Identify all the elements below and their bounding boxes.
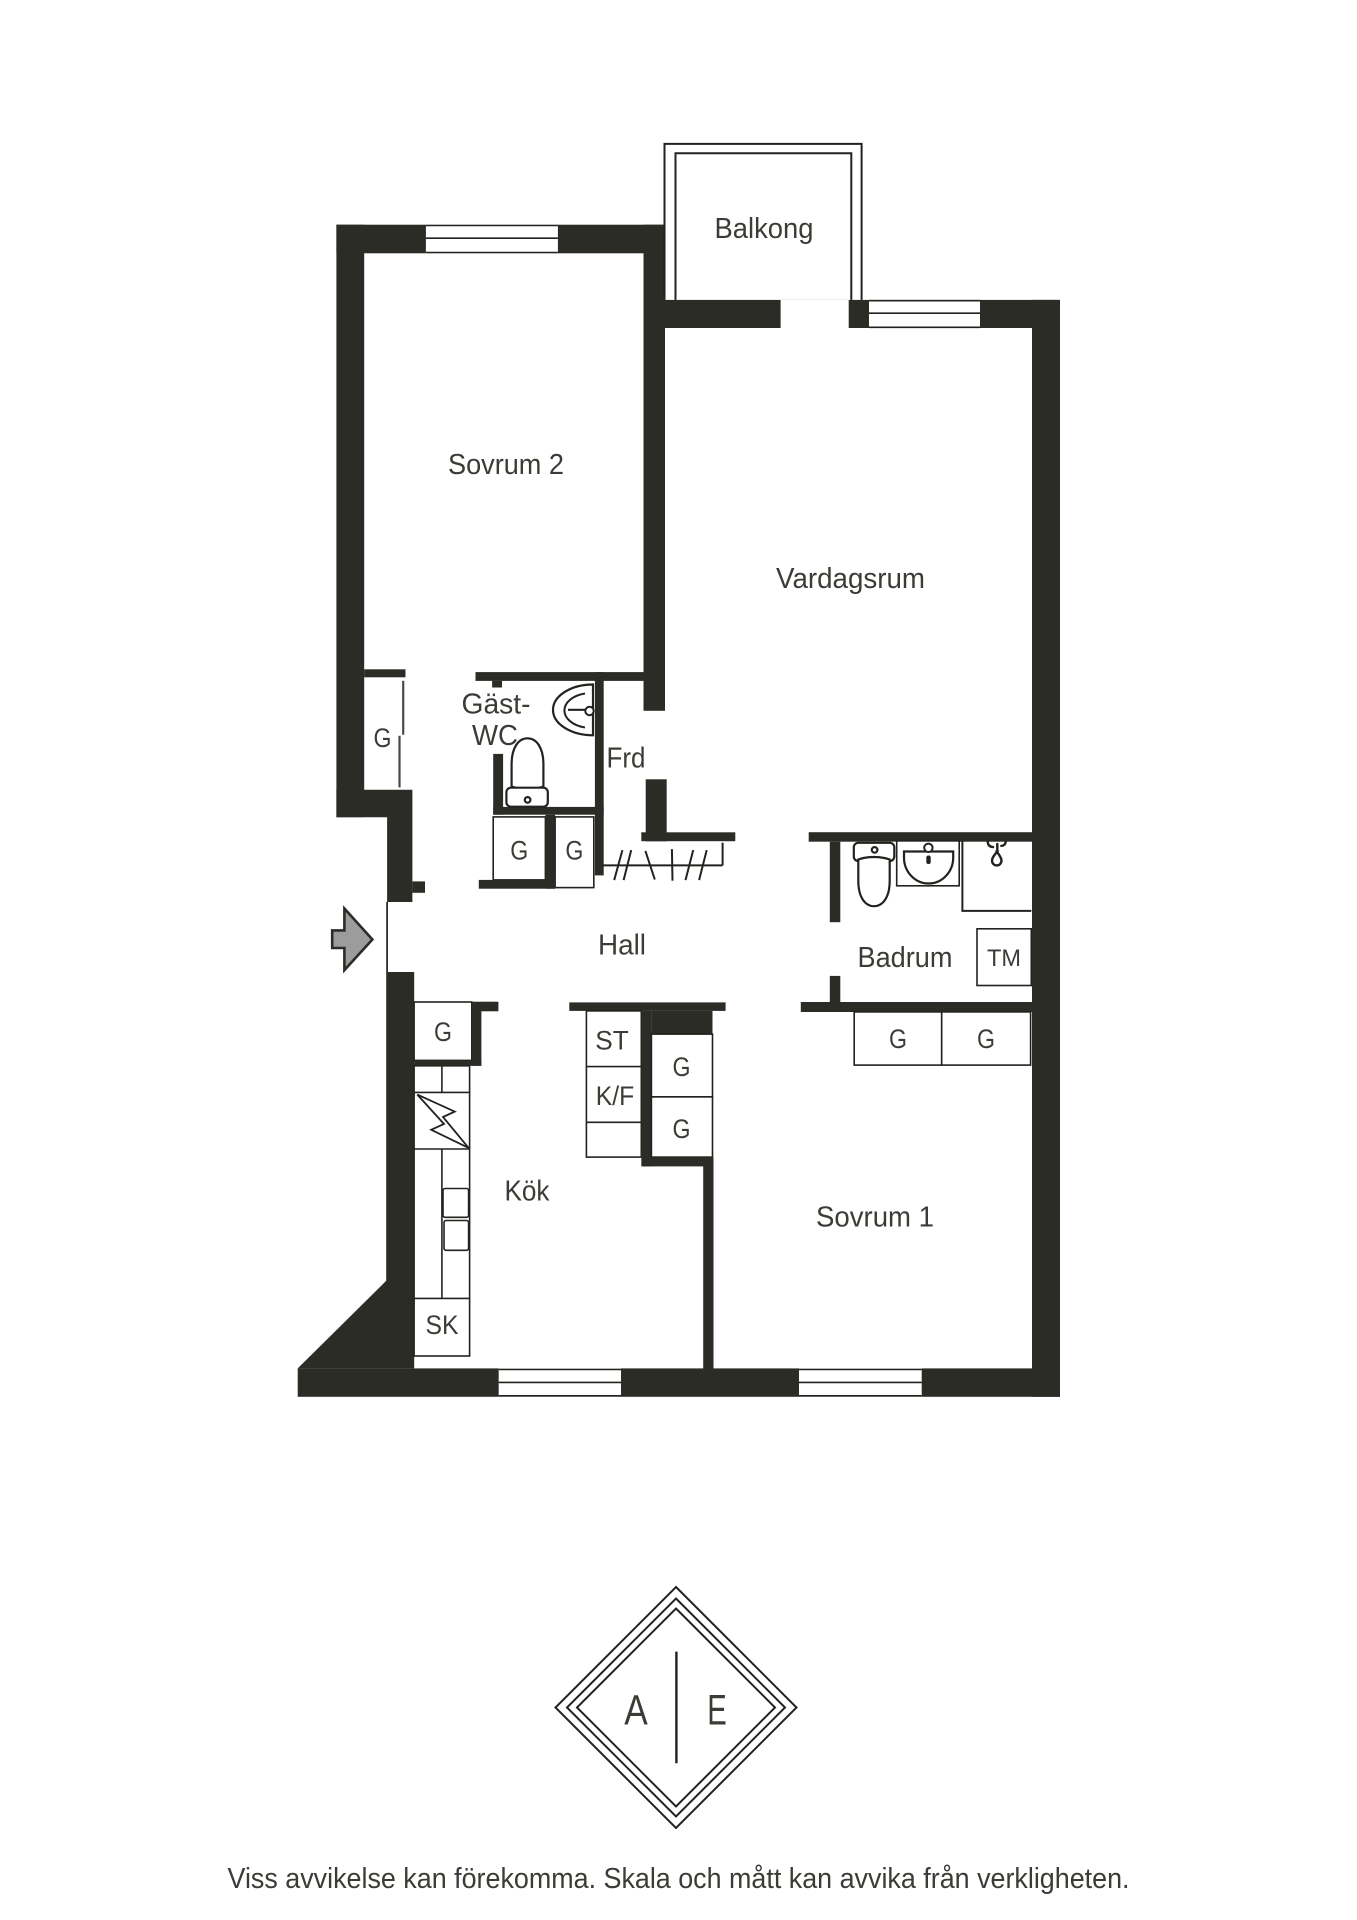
svg-text:Sovrum 2: Sovrum 2 — [448, 449, 564, 481]
svg-text:G: G — [510, 836, 528, 866]
svg-text:TM: TM — [987, 945, 1021, 972]
svg-text:Sovrum 1: Sovrum 1 — [816, 1202, 934, 1234]
svg-text:Badrum: Badrum — [858, 942, 953, 974]
svg-text:Kök: Kök — [505, 1176, 550, 1208]
svg-text:K/F: K/F — [596, 1081, 635, 1111]
svg-text:Vardagsrum: Vardagsrum — [776, 563, 925, 595]
svg-text:Frd: Frd — [607, 743, 646, 775]
svg-text:Gäst-: Gäst- — [462, 689, 531, 721]
svg-text:G: G — [673, 1114, 691, 1144]
svg-text:Balkong: Balkong — [715, 213, 814, 245]
svg-text:Hall: Hall — [598, 930, 646, 962]
svg-text:ST: ST — [595, 1026, 629, 1056]
svg-text:SK: SK — [426, 1310, 459, 1340]
svg-text:G: G — [374, 723, 392, 753]
svg-text:A: A — [624, 1686, 648, 1734]
svg-text:G: G — [977, 1024, 995, 1054]
svg-text:G: G — [565, 836, 583, 866]
svg-text:E: E — [707, 1686, 727, 1734]
svg-text:G: G — [673, 1052, 691, 1082]
svg-text:Viss avvikelse kan förekomma.: Viss avvikelse kan förekomma. Skala och … — [228, 1863, 1130, 1895]
svg-text:G: G — [434, 1017, 452, 1047]
svg-text:WC: WC — [472, 720, 518, 752]
svg-text:G: G — [889, 1024, 907, 1054]
